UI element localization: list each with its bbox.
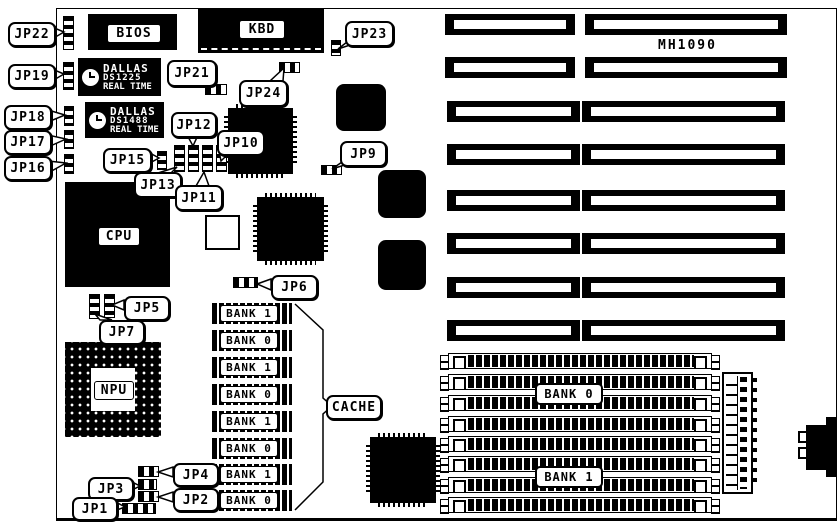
simm-tab-left <box>440 355 449 370</box>
isa-slot-stripe <box>456 326 571 335</box>
npu-label: NPU <box>94 381 134 400</box>
simm-key-left <box>453 439 466 451</box>
jp18-callout: JP18 <box>4 105 52 130</box>
cache-chip-bank-label: BANK 1 <box>220 305 278 322</box>
bios-label: BIOS <box>107 24 161 43</box>
isa-slot-6-a <box>447 233 580 254</box>
simm-key-left <box>453 419 466 431</box>
jp11-jumper-pins <box>202 145 213 172</box>
dallas2-caption: REAL TIME <box>110 126 159 135</box>
jp5-jumper-pins <box>104 294 115 318</box>
isa-slot-stripe <box>591 196 776 205</box>
cache-chip-row: BANK 1 <box>210 411 292 432</box>
simm-tab-left <box>440 499 449 514</box>
isa-slot-stripe <box>591 326 776 335</box>
qfp-pins-left <box>366 445 370 495</box>
cpu-label: CPU <box>98 227 140 246</box>
cache-chip-bank-label: BANK 1 <box>220 413 278 430</box>
simm-socket-4 <box>448 416 712 432</box>
memory-bank1-label: BANK 1 <box>535 466 603 488</box>
qfp-pins-top <box>265 193 316 197</box>
jp1-callout: JP1 <box>72 497 118 521</box>
dallas-ds1488-text: DALLAS DS1488 REAL TIME <box>110 106 159 135</box>
jp4-callout: JP4 <box>173 463 219 487</box>
simm-tab-right <box>711 418 720 433</box>
qfp-pins-top <box>378 433 428 437</box>
jp1-jumper-pins <box>122 503 156 514</box>
isa-slot-2-a <box>445 57 575 78</box>
power-connector <box>722 372 753 494</box>
simm-tab-right <box>711 355 720 370</box>
simm-tab-right <box>711 397 720 412</box>
dallas-ds1488-chip: DALLAS DS1488 REAL TIME <box>85 102 164 138</box>
cache-chip-row: BANK 0 <box>210 438 292 459</box>
simm-tab-left <box>440 376 449 391</box>
kbd-chip-pins <box>201 48 321 50</box>
plcc-chip-2 <box>378 170 426 218</box>
isa-slot-stripe <box>594 63 778 72</box>
simm-key-right <box>694 459 707 471</box>
isa-slot-stripe <box>456 283 571 292</box>
jp16-callout: JP16 <box>4 156 52 181</box>
simm-tab-right <box>711 458 720 473</box>
isa-slot-stripe <box>454 63 566 72</box>
dallas1-caption: REAL TIME <box>103 83 152 92</box>
jp17-callout: JP17 <box>4 130 52 155</box>
qfp-pins-bottom <box>265 261 316 265</box>
isa-slot-stripe <box>591 150 776 159</box>
jp9-callout: JP9 <box>340 141 387 167</box>
jp9-jumper-pins <box>321 165 342 175</box>
jp24-jumper-pins <box>279 62 300 73</box>
simm-socket-8 <box>448 497 712 513</box>
jp21-callout: JP21 <box>167 60 217 87</box>
qfp-pins-bottom <box>236 174 285 178</box>
simm-tab-left <box>440 479 449 494</box>
simm-key-right <box>694 377 707 389</box>
cache-chip-bank-label: BANK 0 <box>220 386 278 403</box>
qfp-chip-3 <box>370 437 436 503</box>
qfp-pins-right <box>436 445 440 495</box>
isa-slot-2-b <box>585 57 787 78</box>
simm-tab-left <box>440 458 449 473</box>
dallas1-brand: DALLAS <box>103 63 152 74</box>
jp22-jumper-pins <box>63 16 74 50</box>
jp23-callout: JP23 <box>345 21 394 47</box>
simm-key-left <box>453 480 466 492</box>
jp24-callout: JP24 <box>239 80 288 107</box>
simm-key-right <box>694 480 707 492</box>
isa-slot-4-b <box>582 144 785 165</box>
isa-slot-stripe <box>456 150 571 159</box>
kbd-chip: KBD <box>198 8 324 53</box>
isa-slot-stripe <box>454 20 566 29</box>
jp4-jumper-pins <box>138 466 159 477</box>
power-connector-pins <box>751 378 757 488</box>
simm-tab-left <box>440 397 449 412</box>
alarm-clock-icon <box>82 69 99 86</box>
simm-key-right <box>694 500 707 512</box>
isa-slot-stripe <box>456 196 571 205</box>
plcc-chip-3 <box>378 240 426 290</box>
simm-key-left <box>453 377 466 389</box>
plcc-chip-1 <box>336 84 386 131</box>
dallas-ds1225-chip: DALLAS DS1225 REAL TIME <box>78 58 161 96</box>
simm-socket-pins <box>466 355 694 367</box>
isa-slot-stripe <box>456 107 571 116</box>
cache-chip-row: BANK 1 <box>210 357 292 378</box>
qfp-chip-2 <box>257 197 324 261</box>
qfp-pins-bottom <box>378 503 428 507</box>
jp2-jumper-pins <box>138 491 159 502</box>
jp6-callout: JP6 <box>271 275 318 300</box>
bios-chip: BIOS <box>88 14 177 50</box>
simm-tab-right <box>711 438 720 453</box>
cache-chip-row: BANK 0 <box>210 490 292 511</box>
isa-slot-stripe <box>591 283 776 292</box>
isa-slot-8-a <box>447 320 580 341</box>
din-step-top <box>826 417 836 427</box>
dallas-ds1225-text: DALLAS DS1225 REAL TIME <box>103 63 152 92</box>
simm-tab-right <box>711 479 720 494</box>
isa-slot-7-b <box>582 277 785 298</box>
isa-slot-6-b <box>582 233 785 254</box>
simm-key-right <box>694 398 707 410</box>
power-connector-contacts <box>740 377 747 489</box>
npu-socket: NPU <box>65 342 161 437</box>
jp22-callout: JP22 <box>8 22 56 47</box>
cache-callout: CACHE <box>326 395 382 420</box>
jp18-jumper-pins <box>64 106 74 126</box>
board-model-label: MH1090 <box>658 38 717 53</box>
cache-chip-row: BANK 1 <box>210 303 292 324</box>
cache-chip-bank-label: BANK 0 <box>220 492 278 509</box>
jp13-jumper-pins <box>174 145 185 172</box>
simm-key-left <box>453 459 466 471</box>
jp15-jumper-pins <box>157 151 167 170</box>
memory-bank0-label: BANK 0 <box>535 383 603 405</box>
simm-tab-right <box>711 499 720 514</box>
jp17-jumper-pins <box>64 130 74 149</box>
cache-chip-bank-label: BANK 0 <box>220 332 278 349</box>
jp10-callout: JP10 <box>217 130 265 156</box>
simm-tab-right <box>711 376 720 391</box>
isa-slot-5-a <box>447 190 580 211</box>
simm-key-right <box>694 356 707 368</box>
din-body <box>806 425 836 470</box>
isa-slot-1-b <box>585 14 787 35</box>
isa-slot-5-b <box>582 190 785 211</box>
simm-socket-pins <box>466 438 694 450</box>
qfp-pins-right <box>293 116 297 166</box>
isa-slot-4-a <box>447 144 580 165</box>
cache-chip-bank-label: BANK 1 <box>220 466 278 483</box>
cache-chip-bank-label: BANK 0 <box>220 440 278 457</box>
cache-chip-row: BANK 0 <box>210 330 292 351</box>
isa-slot-8-b <box>582 320 785 341</box>
npu-socket-center: NPU <box>91 368 135 411</box>
simm-tab-left <box>440 438 449 453</box>
qfp-pins-left <box>253 205 257 253</box>
simm-socket-pins <box>466 499 694 511</box>
simm-key-left <box>453 356 466 368</box>
simm-socket-5 <box>448 436 712 452</box>
jp23-jumper-pins <box>331 40 341 56</box>
isa-slot-stripe <box>591 239 776 248</box>
isa-slot-stripe <box>591 107 776 116</box>
qfp-pins-right <box>324 205 328 253</box>
simm-socket-1 <box>448 353 712 369</box>
jp16-jumper-pins <box>64 154 74 174</box>
jp19-jumper-pins <box>63 62 74 90</box>
isa-slot-3-a <box>447 101 580 122</box>
isa-slot-3-b <box>582 101 785 122</box>
jp6-jumper-pins <box>233 277 258 288</box>
jp12-jumper-pins <box>188 145 199 172</box>
simm-key-left <box>453 500 466 512</box>
power-connector-cells <box>726 376 738 490</box>
isa-slot-stripe <box>594 20 778 29</box>
alarm-clock-icon <box>89 112 106 129</box>
outlined-chip-1 <box>205 215 240 250</box>
din-tab-2 <box>798 447 808 459</box>
din-tab-1 <box>798 431 808 443</box>
jp2-callout: JP2 <box>173 488 219 512</box>
cache-chip-row: BANK 0 <box>210 384 292 405</box>
motherboard-diagram: BIOS KBD DALLAS DS1225 REAL TIME DALLAS … <box>0 0 839 527</box>
din-step-bottom <box>826 468 836 477</box>
cache-chip-row: BANK 1 <box>210 464 292 485</box>
simm-key-right <box>694 439 707 451</box>
dallas2-brand: DALLAS <box>110 106 159 117</box>
jp3-jumper-pins <box>138 479 157 490</box>
jp15-callout: JP15 <box>103 148 152 173</box>
isa-slot-7-a <box>447 277 580 298</box>
jp12-callout: JP12 <box>171 112 217 138</box>
jp11-callout: JP11 <box>175 185 223 211</box>
jp7-jumper-pins <box>89 294 100 319</box>
simm-key-left <box>453 398 466 410</box>
simm-socket-pins <box>466 418 694 430</box>
isa-slot-1-a <box>445 14 575 35</box>
kbd-label: KBD <box>239 20 285 39</box>
jp19-callout: JP19 <box>8 64 56 89</box>
jp7-callout: JP7 <box>99 320 145 345</box>
keyboard-din-connector <box>798 415 838 479</box>
simm-tab-left <box>440 418 449 433</box>
simm-key-right <box>694 419 707 431</box>
isa-slot-stripe <box>456 239 571 248</box>
cache-chip-bank-label: BANK 1 <box>220 359 278 376</box>
jp5-callout: JP5 <box>124 296 170 321</box>
